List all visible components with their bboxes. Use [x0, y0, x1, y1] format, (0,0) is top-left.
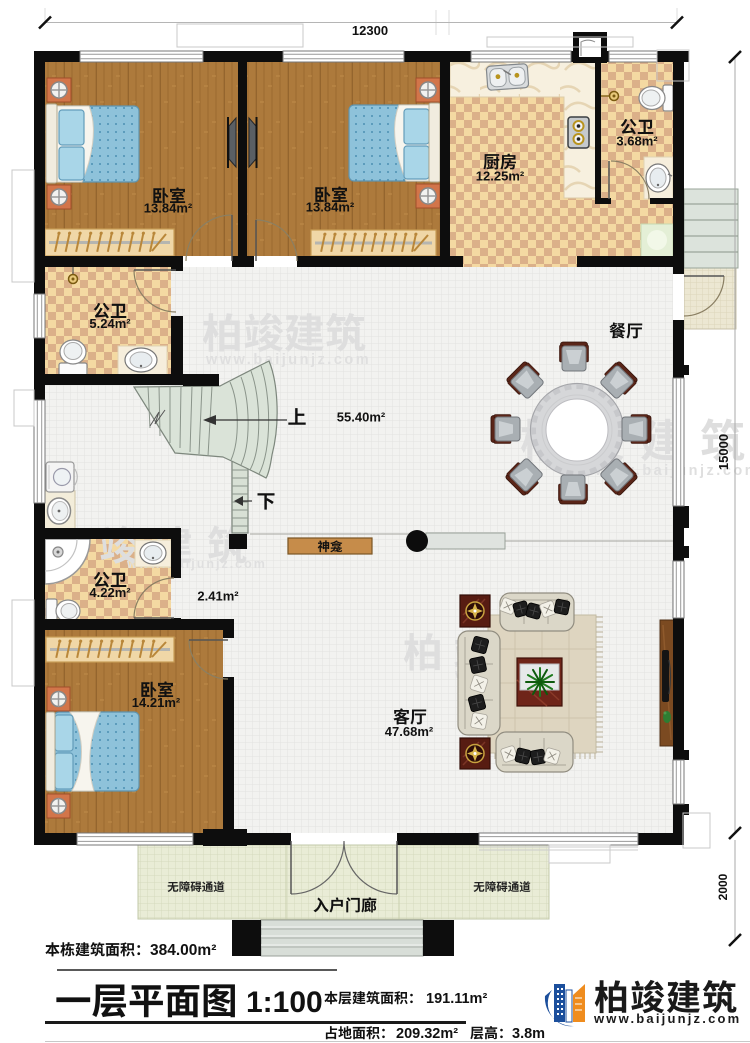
svg-text:13.84m²: 13.84m² [306, 200, 355, 215]
svg-text:209.32m²: 209.32m² [396, 1026, 458, 1042]
svg-text:2000: 2000 [716, 873, 730, 900]
svg-text:47.68m²: 47.68m² [385, 724, 434, 739]
svg-text:384.00m²: 384.00m² [150, 942, 216, 959]
svg-text:4.22m²: 4.22m² [89, 585, 131, 600]
svg-text:13.84m²: 13.84m² [144, 201, 193, 216]
svg-text:5.24m²: 5.24m² [89, 316, 131, 331]
svg-text:3.68m²: 3.68m² [616, 134, 658, 149]
svg-text:15000: 15000 [716, 434, 731, 470]
svg-text:191.11m²: 191.11m² [426, 991, 487, 1007]
svg-text:www.baijunjz.com: www.baijunjz.com [205, 352, 371, 368]
svg-text:2.41m²: 2.41m² [197, 589, 239, 604]
svg-text:www.baijunjz.com: www.baijunjz.com [593, 1011, 741, 1026]
svg-text:1:100: 1:100 [246, 986, 323, 1019]
svg-text:14.21m²: 14.21m² [132, 695, 181, 710]
svg-text:55.40m²: 55.40m² [337, 410, 386, 425]
svg-text:12.25m²: 12.25m² [476, 169, 525, 184]
svg-text:12300: 12300 [352, 23, 388, 38]
svg-text:3.8m: 3.8m [512, 1026, 545, 1042]
